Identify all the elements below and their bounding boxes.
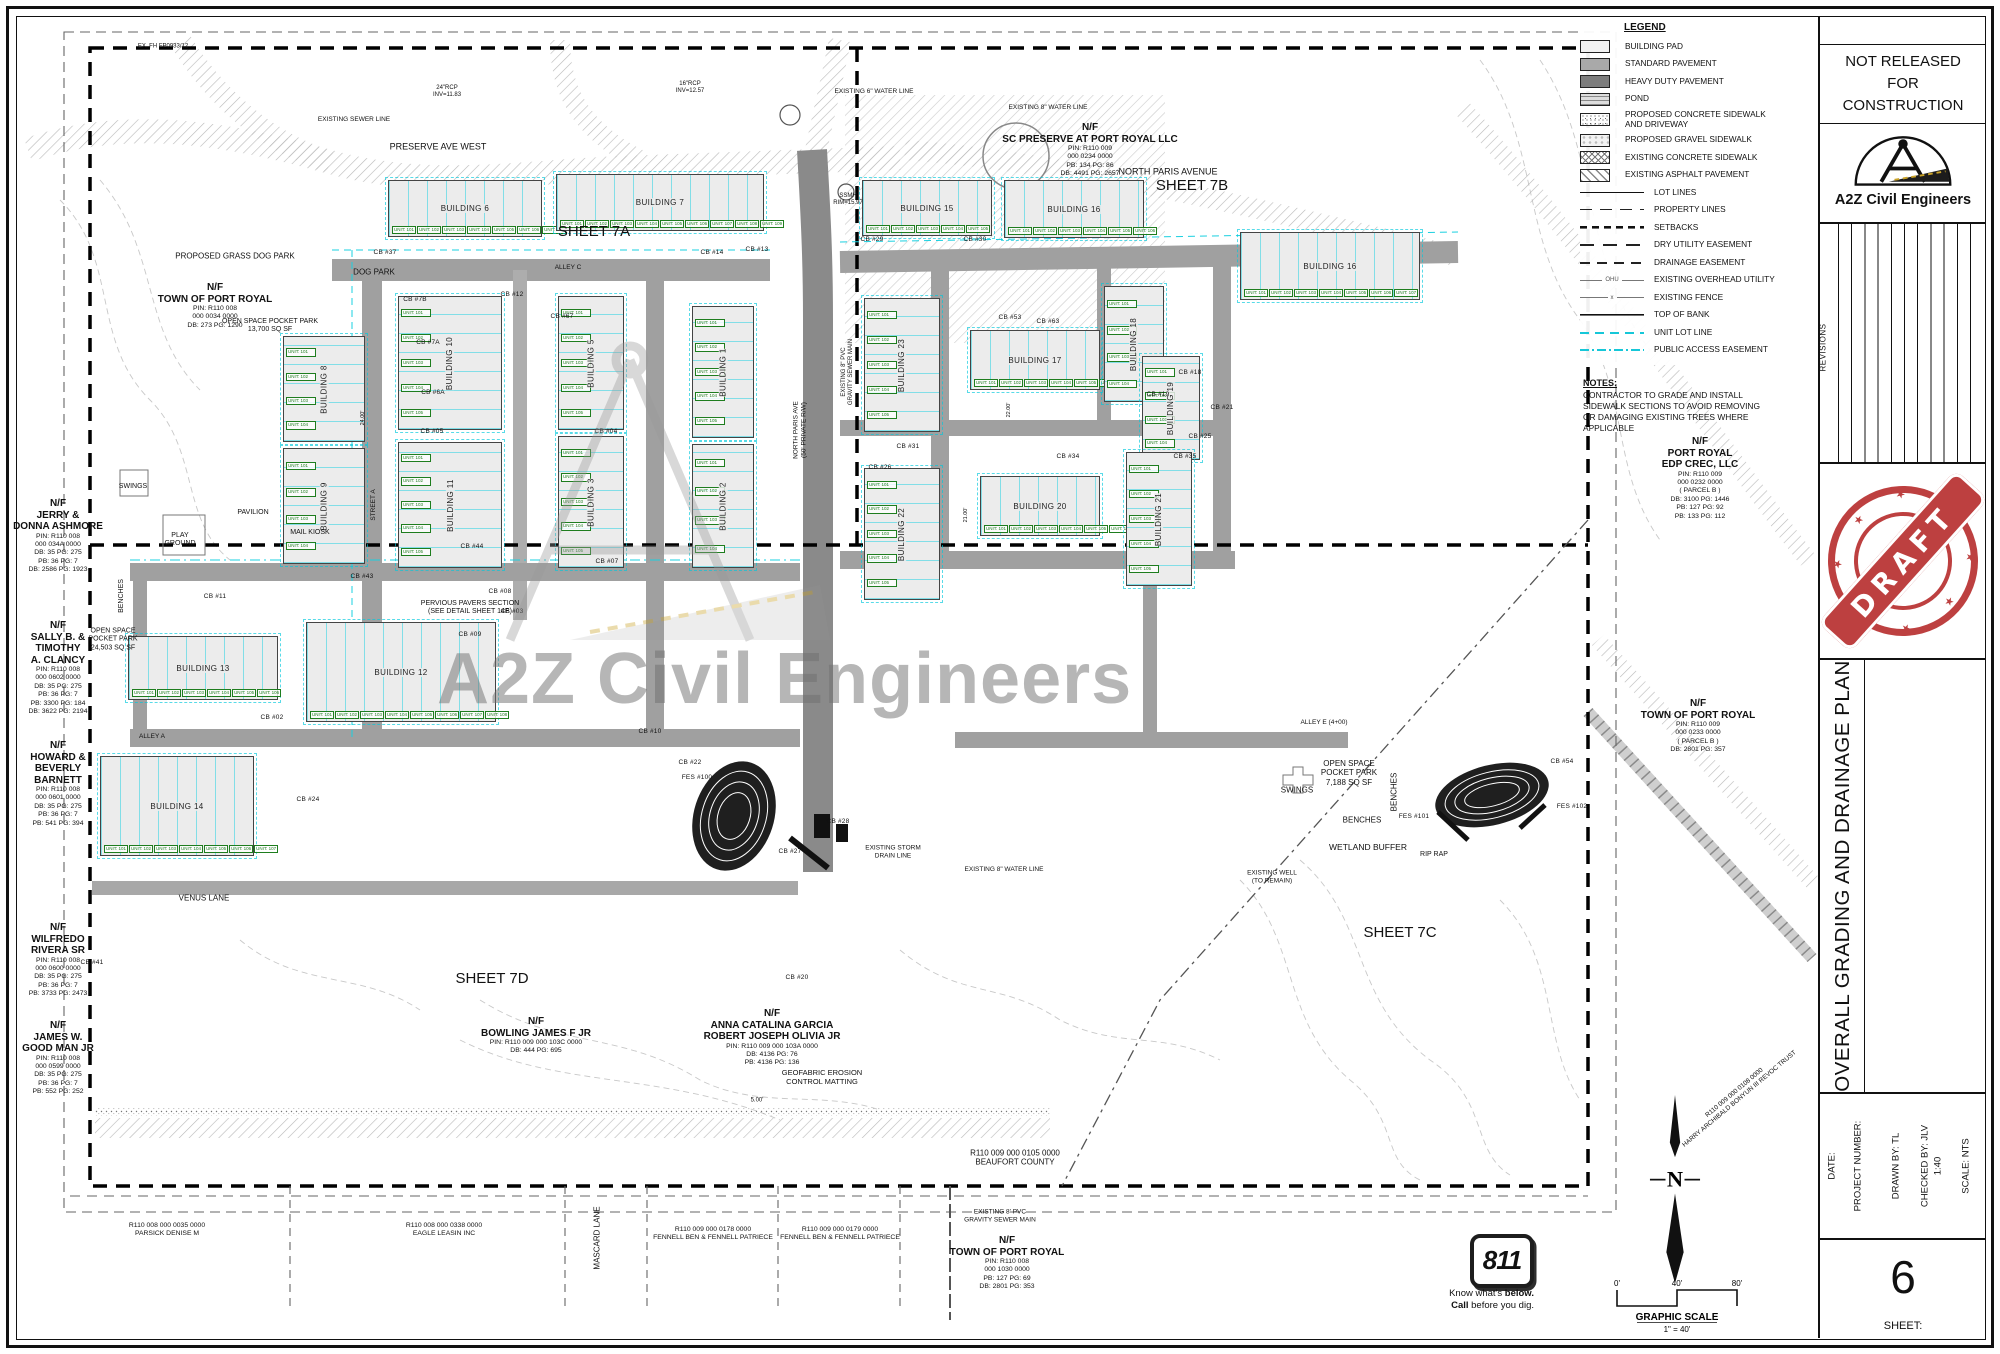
building-label: BUILDING 6 [441,204,489,213]
nr-line1: NOT RELEASED [1820,51,1986,73]
graphic-scale: 0' 40' 80' GRAPHIC SCALE 1" = 40' [1595,1276,1765,1334]
unit-box: UNIT: 104 [1145,439,1175,447]
building-pad: BUILDING 21UNIT: 101UNIT: 102UNIT: 103UN… [1126,452,1192,586]
plan-label: DOG PARK [353,267,395,276]
unit-box: UNIT: 102 [867,505,897,513]
plan-label: SHEET 7A [558,223,630,241]
call-text: Call [1451,1300,1471,1311]
legend-fill-label: EXISTING ASPHALT PAVEMENT [1625,170,1749,180]
checked-by-text: CHECKED BY: JLV [1919,1125,1932,1207]
notes-line: APPLICABLE [1583,423,1801,434]
gravel-swatch [1580,134,1610,147]
legend-line-label: EXISTING FENCE [1654,293,1723,303]
structure-label: FES #102 [1557,803,1588,811]
unit-box: UNIT: 104 [1049,379,1073,387]
legend-line-label: PUBLIC ACCESS EASEMENT [1654,345,1768,355]
unit-box: UNIT: 105 [1074,379,1098,387]
unit-box: UNIT: 103 [916,225,940,233]
legend-title: LEGEND [1624,22,1813,33]
nr-line3: CONSTRUCTION [1820,95,1986,117]
legend-line-row: PROPERTY LINES [1580,204,1813,217]
unit-box: UNIT: 106 [685,220,709,228]
notes-line: CONTRACTOR TO GRADE AND INSTALL [1583,390,1801,401]
structure-label: CB #19 [1147,391,1170,399]
plan-label: EXISTING 8" PVC GRAVITY SEWER MAIN [841,339,855,405]
plan-label: 24.00' [360,411,366,426]
unit-box: UNIT: 101 [561,449,591,457]
structure-label: CB #08 [489,588,512,596]
structure-label: CB #53 [999,314,1022,322]
plan-label: EXISTING 8" WATER LINE [965,866,1044,874]
plan-label: BENCHES [1389,773,1398,812]
unit-box: UNIT: 101 [867,311,897,319]
call-811-block: 811 Know what's below. Call before you d… [1412,1234,1534,1312]
unit-box: UNIT: 105 [561,547,591,555]
structure-label: CB #29 [861,236,884,244]
building-label: BUILDING 18 [1130,317,1139,370]
asph-swatch [1580,169,1610,182]
building-pad: BUILDING 9UNIT: 101UNIT: 102UNIT: 103UNI… [283,448,365,564]
plan-label: EXISTING 8" WATER LINE [1009,104,1088,112]
structure-label: CB #05 [421,428,444,436]
unit-box: UNIT: 106 [1133,227,1157,235]
unit-box: UNIT: 101 [132,689,156,697]
structure-label: CB #13 [746,246,769,254]
unit-box: UNIT: 107 [460,711,484,719]
building-label: BUILDING 3 [587,478,596,526]
plan-label: SHEET 7C [1363,924,1436,942]
unit-box: UNIT: 102 [867,336,897,344]
owner-parcel-label: N/FTOWN OF PORT ROYALPIN: R110 008000 10… [950,1235,1064,1292]
plan-label: RIP RAP [1420,851,1448,859]
plan-label: BENCHES [1343,815,1382,824]
plan-label: EXISTING 8' PVC GRAVITY SEWER MAIN [964,1208,1036,1223]
unit-box: UNIT: 103 [401,359,431,367]
owner-parcel-label: N/FJERRY &DONNA ASHMOREPIN: R110 008000 … [13,498,103,575]
owner-parcel-label: R110 009 000 0178 0000FENNELL BEN & FENN… [653,1226,773,1243]
plan-label: EXISTING STORM DRAIN LINE [865,844,921,859]
building-label: BUILDING 1 [719,348,728,396]
structure-label: CB #43 [351,573,374,581]
legend-fill-label: EXISTING CONCRETE SIDEWALK [1625,153,1757,163]
unit-box: UNIT: 103 [442,226,466,234]
building-label: BUILDING 22 [898,507,907,560]
structure-label: CB #28 [827,818,850,826]
unit-box: UNIT: 107 [1394,289,1418,297]
building-label: BUILDING 10 [446,336,455,389]
xconc-swatch [1580,151,1610,164]
building-label: BUILDING 13 [176,664,229,673]
building-pad: BUILDING 10UNIT: 101UNIT: 102UNIT: 103UN… [398,296,502,430]
plan-label: 5.00' [751,1097,764,1104]
building-pad: BUILDING 1UNIT: 101UNIT: 102UNIT: 103UNI… [692,306,754,438]
unit-box: UNIT: 101 [1107,300,1137,308]
legend-line-row: OHUEXISTING OVERHEAD UTILITY [1580,274,1813,287]
legend-line-label: EXISTING OVERHEAD UTILITY [1654,275,1775,285]
owner-parcel-label: N/FTOWN OF PORT ROYALPIN: R110 009000 02… [1641,698,1755,755]
unit-box: UNIT: 104 [695,545,725,553]
structure-label: CB #35 [1174,453,1197,461]
building-label: BUILDING 16 [1047,205,1100,214]
building-pad: BUILDING 11UNIT: 101UNIT: 102UNIT: 103UN… [398,442,502,568]
know-text: Know what's [1449,1288,1505,1299]
plan-label: GEOFABRIC EROSION CONTROL MATTING [782,1069,862,1087]
unit-box: UNIT: 104 [286,421,316,429]
building-label: BUILDING 23 [898,338,907,391]
firm-name: A2Z Civil Engineers [1820,192,1986,208]
unit-box: UNIT: 104 [286,542,316,550]
building-label: BUILDING 16 [1303,262,1356,271]
sheet-title-section: OVERALL GRADING AND DRAINAGE PLAN [1820,658,1986,1092]
unit-box: UNIT: 103 [286,515,316,523]
structure-label: CB #25 [1189,433,1212,441]
unit-box: UNIT: 105 [204,845,228,853]
plan-label: OPEN SPACE POCKET PARK 24,503 SQ SF [88,628,137,653]
building-pad: BUILDING 14UNIT: 101UNIT: 102UNIT: 103UN… [100,756,254,856]
plan-label: R110 009 000 0105 0000 BEAUFORT COUNTY [970,1149,1060,1168]
unit-box: UNIT: 105 [1344,289,1368,297]
unit-box: UNIT: 107 [710,220,734,228]
line-seg [1580,297,1608,298]
unit-box: UNIT: 103 [154,845,178,853]
unit-box: UNIT: 107 [254,845,278,853]
scale-ratio-text: 1:40 [1932,1125,1945,1207]
unit-box: UNIT: 101 [867,481,897,489]
legend-line-label: UNIT LOT LINE [1654,328,1712,338]
structure-label: CB #54 [1551,758,1574,766]
owner-parcel-label: N/FSALLY B. &TIMOTHYA. CLANCYPIN: R110 0… [29,620,88,717]
building-pad: BUILDING 6UNIT: 101UNIT: 102UNIT: 103UNI… [388,180,542,237]
owner-parcel-label: R110 009 000 0179 0000FENNELL BEN & FENN… [780,1226,900,1243]
building-label: BUILDING 17 [1008,356,1061,365]
unit-box: UNIT: 104 [1107,380,1137,388]
unit-box: UNIT: 101 [866,225,890,233]
plan-label: EXISTING WELL (TO REMAIN) [1247,869,1297,884]
plan-label: SHEET 7B [1156,177,1228,195]
unit-box: UNIT: 105 [401,548,431,556]
building-label: BUILDING 5 [587,339,596,387]
unit-box: UNIT: 104 [867,386,897,394]
svg-text:0': 0' [1614,1279,1620,1288]
unit-box: UNIT: 101 [286,348,316,356]
plan-label: PLAY GROUND [164,532,195,549]
legend-line-row: xEXISTING FENCE [1580,291,1813,304]
unit-box: UNIT: 104 [1083,227,1107,235]
owner-parcel-label: N/FSC PRESERVE AT PORT ROYAL LLCPIN: R11… [1002,122,1177,179]
legend-fill-row: BUILDING PAD [1580,40,1813,53]
legend-line-row: UNIT LOT LINE [1580,326,1813,339]
building-label: BUILDING 19 [1167,381,1176,434]
heavy-swatch [1580,75,1610,88]
owner-parcel-label: N/FTOWN OF PORT ROYALPIN: R110 008000 00… [158,282,272,330]
pond-swatch [1580,93,1610,106]
plan-label: EXISTING 6" WATER LINE [835,88,914,96]
plan-label: PAVILION [237,509,268,517]
building-label: BUILDING 15 [900,204,953,213]
building-pad: BUILDING 13UNIT: 101UNIT: 102UNIT: 103UN… [128,636,278,700]
structure-label: CB #02 [261,714,284,722]
unit-box: UNIT: 101 [104,845,128,853]
plan-label: SHEET 7D [455,970,528,988]
plan-label: SWINGS [119,483,147,491]
legend-line-entries: LOT LINESPROPERTY LINESSETBACKSDRY UTILI… [1580,186,1813,357]
unit-box: UNIT: 104 [1059,525,1083,533]
call-811-icon: 811 [1470,1234,1534,1288]
structure-label: CB #24 [297,796,320,804]
legend-fill-label: BUILDING PAD [1625,42,1683,52]
unit-box: UNIT: 108 [485,711,509,719]
owner-parcel-label: N/FBOWLING JAMES F JRPIN: R110 009 000 1… [481,1016,591,1056]
plan-label: ALLEY C [555,264,582,272]
structure-label: CB #11 [204,593,226,601]
unit-box: UNIT: 109 [760,220,784,228]
legend-line-row: LOT LINES [1580,186,1813,199]
unit-box: UNIT: 104 [867,554,897,562]
sheet-title: OVERALL GRADING AND DRAINAGE PLAN [1831,660,1855,1092]
structure-label: FES #100 [682,774,713,782]
lot-line-sample [1580,188,1644,198]
unit-box: UNIT: 102 [157,689,181,697]
line-seg [1617,297,1645,298]
unit-box: UNIT: 102 [286,488,316,496]
unit-box: UNIT: 103 [1034,525,1058,533]
dry-line-sample [1580,240,1644,250]
unit-box: UNIT: 103 [182,689,206,697]
building-pad: BUILDING 15UNIT: 101UNIT: 102UNIT: 103UN… [862,180,992,236]
unit-box: UNIT: 102 [417,226,441,234]
building-label: BUILDING 9 [320,482,329,530]
unit-box: UNIT: 101 [1244,289,1268,297]
not-released-section: NOT RELEASED FOR CONSTRUCTION A2Z Civil … [1820,16,1986,222]
building-label: BUILDING 12 [374,668,427,677]
unit-box: UNIT: 105 [561,409,591,417]
structure-label: CB #67 [551,313,574,321]
legend-line-row: DRY UTILITY EASEMENT [1580,239,1813,252]
unit-box: UNIT: 101 [974,379,998,387]
unit-box: UNIT: 106 [229,845,253,853]
structure-label: CB #21 [1211,404,1234,412]
unit-box: UNIT: 102 [999,379,1023,387]
revisions-section: REVISIONS [1820,222,1986,462]
structure-label: CB #7B [403,296,427,304]
plan-label: MASCARD LANE [592,1206,601,1269]
structure-label: CB #04 [595,428,618,436]
plan-label: EXISTING SEWER LINE [318,116,390,124]
sheet-number: 6 [1820,1250,1986,1304]
draft-stamp: ★ ★ ★ ★ ★ ★ ★ ★ DRAFT [1797,455,2000,667]
unit-box: UNIT: 101 [984,525,1008,533]
set-line-sample [1580,223,1644,233]
title-block: NOT RELEASED FOR CONSTRUCTION A2Z Civil … [1818,16,1986,1338]
unit-box: UNIT: 106 [435,711,459,719]
unit-box: UNIT: 103 [1024,379,1048,387]
plan-label: 16"RCP INV=12.57 [676,81,705,95]
structure-label: CB #26 [869,464,892,472]
legend-fill-row: HEAVY DUTY PAVEMENT [1580,75,1813,88]
building-label: BUILDING 21 [1155,492,1164,545]
unit-box: UNIT: 105 [660,220,684,228]
svg-text:1" = 40': 1" = 40' [1664,1325,1691,1334]
structure-label: CB #44 [461,543,484,551]
building-label: BUILDING 7 [636,198,684,207]
unit-box: UNIT: 104 [385,711,409,719]
structure-label: CB #22 [679,759,702,767]
legend-line-row: PUBLIC ACCESS EASEMENT [1580,344,1813,357]
ohu-line-sample: OHU [1580,275,1644,285]
legend-line-label: DRAINAGE EASEMENT [1654,258,1745,268]
owner-parcel-label: N/FWILFREDORIVERA SRPIN: R110 008000 060… [29,922,88,999]
conc-swatch [1580,113,1610,126]
legend-fill-row: EXISTING CONCRETE SIDEWALK [1580,151,1813,164]
line-seg [1580,280,1602,281]
legend-line-label: LOT LINES [1654,188,1696,198]
building-pad: BUILDING 23UNIT: 101UNIT: 102UNIT: 103UN… [864,298,940,432]
structure-label: CB #03 [501,608,524,616]
unit-box: UNIT: 105 [966,225,990,233]
sheet-number-section: 6 SHEET: [1820,1238,1986,1338]
drawing-sheet: A2Z Civil Engineers LEGEND BUILDING PADS… [0,0,2000,1354]
legend-line-label: SETBACKS [1654,223,1698,233]
unit-box: UNIT: 101 [695,319,725,327]
bank-line-sample [1580,310,1644,320]
plan-label: STREET A [370,489,378,520]
unit-box: UNIT: 105 [401,409,431,417]
structure-label: CB #12 [501,291,524,299]
plan-label: 22.00' [1006,403,1012,418]
owner-parcel-label: R110 008 000 0338 0000EAGLE LEASIN INC [406,1222,482,1239]
unit-box: UNIT: 103 [1294,289,1318,297]
draft-stamp-section: ★ ★ ★ ★ ★ ★ ★ ★ DRAFT [1820,462,1986,658]
unit-box: UNIT: 105 [1084,525,1108,533]
structure-label: CB #20 [786,974,809,982]
drawing-info-section: DATE: PROJECT NUMBER: DRAWN BY: TL CHECK… [1820,1092,1986,1238]
building-pad: BUILDING 8UNIT: 101UNIT: 102UNIT: 103UNI… [283,336,365,442]
legend-fill-label: PROPOSED GRAVEL SIDEWALK [1625,135,1752,145]
unit-box: UNIT: 106 [257,689,281,697]
project-number-label: PROJECT NUMBER: [1851,1121,1864,1212]
revisions-label: REVISIONS [1819,317,1828,379]
unit-box: UNIT: 103 [360,711,384,719]
nr-line2: FOR [1820,73,1986,95]
unit-box: UNIT: 104 [635,220,659,228]
checked-by-label: CHECKED BY: JLV 1:40 [1919,1125,1946,1207]
legend-fill-row: PROPOSED CONCRETE SIDEWALK AND DRIVEWAY [1580,110,1813,129]
north-label: N [1667,1167,1683,1192]
legend-line-row: SETBACKS [1580,221,1813,234]
unit-box: UNIT: 105 [1108,227,1132,235]
legend-fill-label: PROPOSED CONCRETE SIDEWALK AND DRIVEWAY [1625,110,1766,129]
plan-label: EX. FH FP0933/12 [138,43,188,50]
unit-box: UNIT: 103 [1058,227,1082,235]
unit-box: UNIT: 101 [392,226,416,234]
svg-text:GRAPHIC SCALE: GRAPHIC SCALE [1636,1312,1719,1323]
owner-parcel-label: R110 008 000 0035 0000PARSICK DENISE M [129,1222,205,1239]
owner-parcel-label: N/FJAMES W.GOOD MAN JRPIN: R110 008000 0… [22,1020,94,1097]
std-swatch [1580,58,1610,71]
unit-box: UNIT: 104 [401,524,431,532]
owner-parcel-label: N/FHOWARD &BEVERLYBARNETTPIN: R110 00800… [30,740,86,828]
unit-box: UNIT: 102 [1033,227,1057,235]
legend-fill-entries: BUILDING PADSTANDARD PAVEMENTHEAVY DUTY … [1580,40,1813,182]
unit-box: UNIT: 101 [310,711,334,719]
structure-label: CB #63 [1037,318,1060,326]
building-pad: BUILDING 16UNIT: 101UNIT: 102UNIT: 103UN… [1004,180,1144,238]
legend: LEGEND BUILDING PADSTANDARD PAVEMENTHEAV… [1580,20,1813,365]
plan-label: ALLEY E (4+00) [1300,719,1347,727]
below-text: below. [1505,1288,1534,1299]
notes-line: SIDEWALK SECTIONS TO AVOID REMOVING [1583,401,1801,412]
unit-box: UNIT: 104 [207,689,231,697]
unit-box: UNIT: 105 [695,417,725,425]
structure-label: CB #07 [596,558,619,566]
unit-box: UNIT: 101 [286,462,316,470]
plan-label: MAIL KIOSK [290,529,329,537]
line-seg [1622,280,1644,281]
plan-label: SSMH RIM=15.97 [833,193,863,207]
legend-line-label: DRY UTILITY EASEMENT [1654,240,1752,250]
unit-box: UNIT: 101 [695,459,725,467]
unitl-line-sample [1580,328,1644,338]
north-arrow: N [1640,1095,1710,1285]
plan-label: OPEN SPACE POCKET PARK 7,188 SQ SF [1321,759,1377,787]
unit-box: UNIT: 105 [867,411,897,419]
drain-line-sample [1580,258,1644,268]
legend-fill-label: POND [1625,94,1649,104]
owner-parcel-label: N/FPORT ROYALEDP CREC, LLCPIN: R110 0090… [1662,436,1739,521]
unit-box: UNIT: 102 [1009,525,1033,533]
building-pad: BUILDING 17UNIT: 101UNIT: 102UNIT: 103UN… [970,330,1100,390]
structure-label: CB #37 [374,249,397,257]
plan-label: 24"RCP INV=11.83 [433,85,461,99]
building-label: BUILDING 20 [1013,502,1066,511]
structure-label: CB #31 [897,443,920,451]
plan-label: PRESERVE AVE WEST [390,142,487,153]
structure-label: CB #6A [421,389,445,397]
legend-fill-row: POND [1580,93,1813,106]
unit-box: UNIT: 101 [1008,227,1032,235]
unit-box: UNIT: 104 [1319,289,1343,297]
unit-box: UNIT: 102 [286,373,316,381]
notes-block: NOTES: CONTRACTOR TO GRADE AND INSTALLSI… [1583,378,1801,434]
building-pad: BUILDING 22UNIT: 101UNIT: 102UNIT: 103UN… [864,468,940,600]
pad-swatch [1580,40,1610,53]
unit-box: UNIT: 102 [401,477,431,485]
unit-box: UNIT: 108 [735,220,759,228]
date-label: DATE: [1825,1152,1838,1179]
unit-box: UNIT: 104 [467,226,491,234]
building-label: BUILDING 2 [719,482,728,530]
unit-box: UNIT: 102 [335,711,359,719]
unit-box: UNIT: 101 [1129,465,1159,473]
scale-label: SCALE: NTS [1959,1138,1972,1193]
unit-box: UNIT: 103 [286,397,316,405]
unit-box: UNIT: 102 [891,225,915,233]
unit-box: UNIT: 104 [179,845,203,853]
unit-box: UNIT: 105 [492,226,516,234]
drawn-by-label: DRAWN BY: TL [1889,1133,1902,1200]
legend-line-label: PROPERTY LINES [1654,205,1726,215]
pub-line-sample [1580,345,1644,355]
legend-fill-label: HEAVY DUTY PAVEMENT [1625,77,1724,87]
structure-label: CB #34 [1057,453,1080,461]
legend-line-row: TOP OF BANK [1580,309,1813,322]
legend-line-row: DRAINAGE EASEMENT [1580,256,1813,269]
legend-fill-label: STANDARD PAVEMENT [1625,59,1717,69]
not-released-stamp: NOT RELEASED FOR CONSTRUCTION [1820,44,1986,124]
prop-line-sample [1580,205,1644,215]
plan-canvas: A2Z Civil Engineers LEGEND BUILDING PADS… [0,0,2000,1354]
fence-line-sample: x [1580,293,1644,303]
